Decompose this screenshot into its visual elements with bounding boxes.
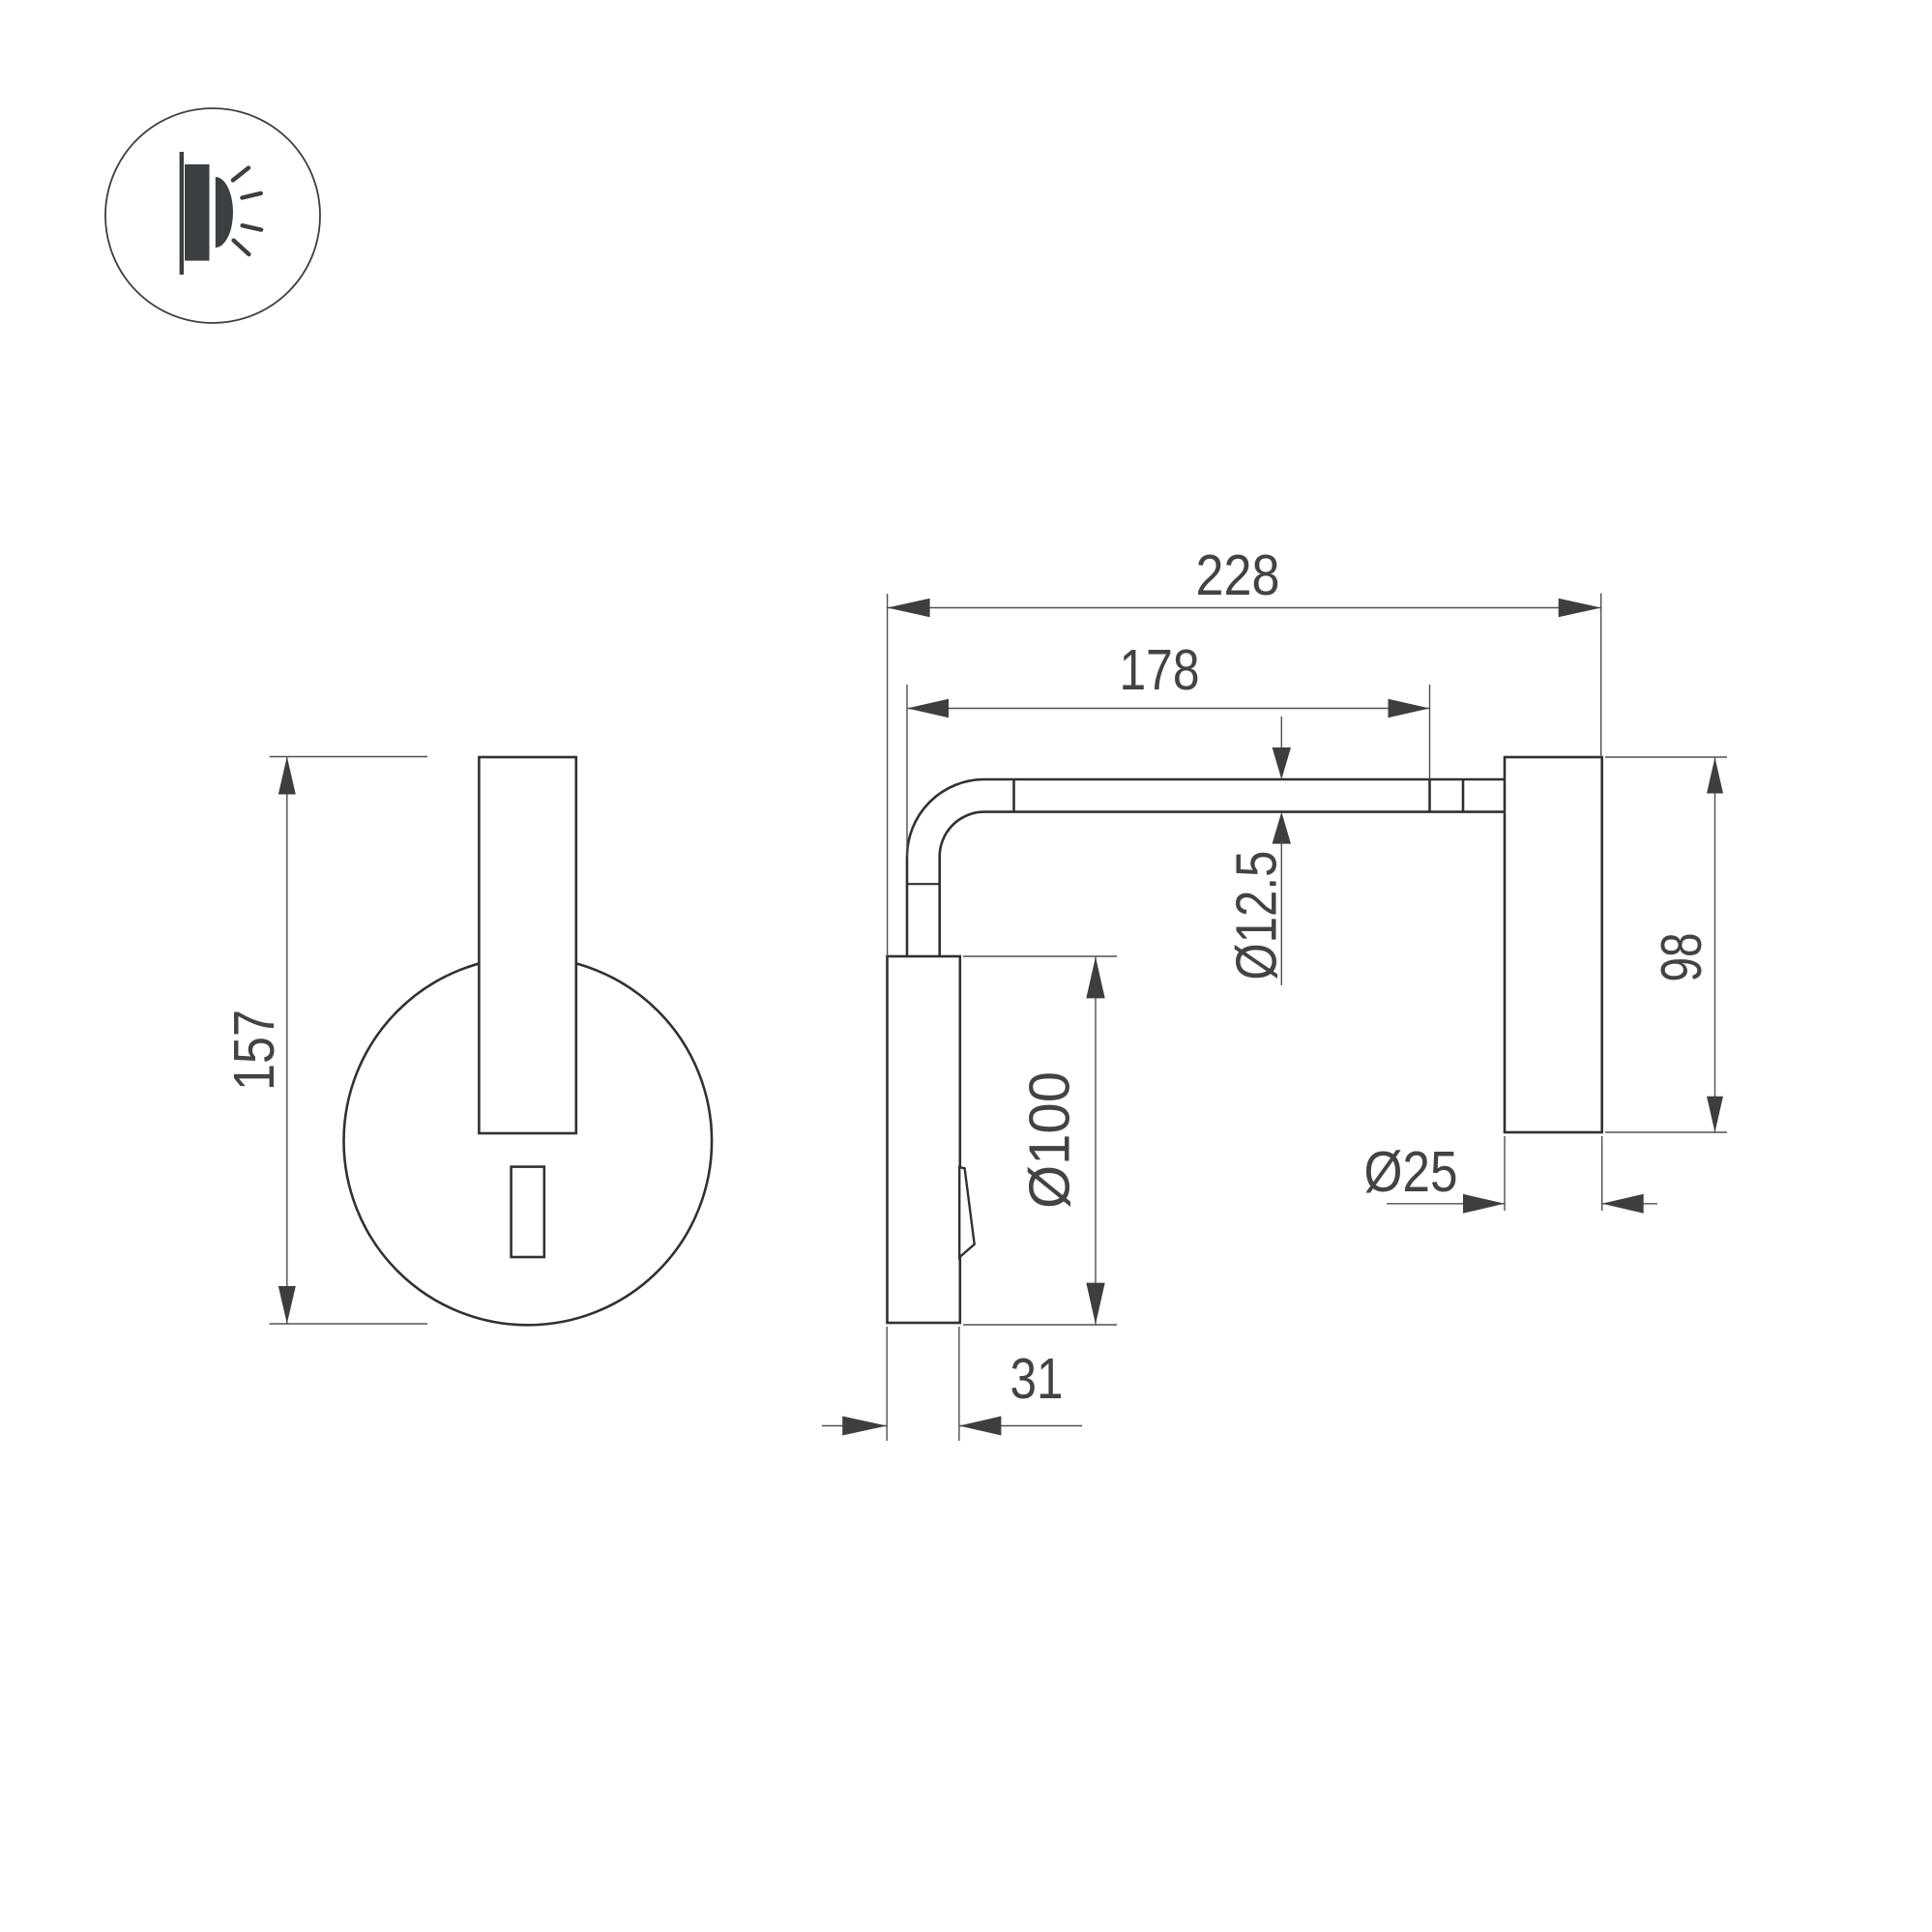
svg-text:178: 178 bbox=[1120, 638, 1200, 702]
svg-text:98: 98 bbox=[1650, 933, 1713, 982]
svg-text:157: 157 bbox=[222, 1010, 286, 1091]
svg-text:228: 228 bbox=[1196, 543, 1280, 607]
svg-text:31: 31 bbox=[1010, 1347, 1064, 1411]
svg-text:Ø100: Ø100 bbox=[1017, 1071, 1081, 1209]
svg-text:Ø25: Ø25 bbox=[1364, 1140, 1458, 1204]
svg-text:Ø12.5: Ø12.5 bbox=[1224, 851, 1288, 981]
